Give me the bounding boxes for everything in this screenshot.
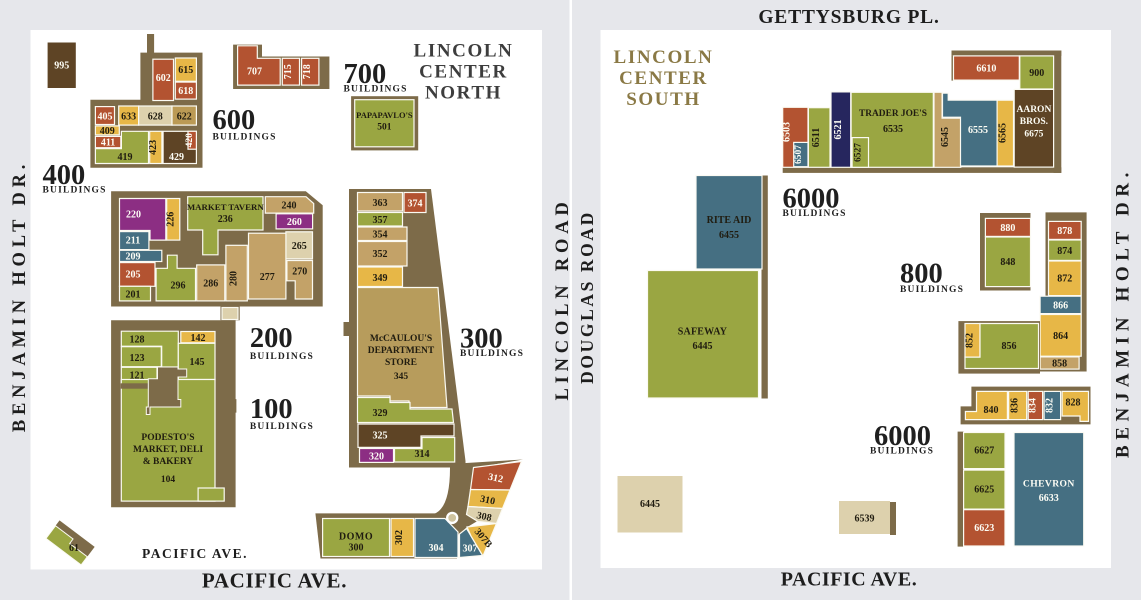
svg-text:DOUGLAS ROAD: DOUGLAS ROAD	[577, 210, 597, 384]
svg-text:6565: 6565	[997, 123, 1008, 143]
svg-text:307: 307	[463, 544, 478, 555]
svg-text:296: 296	[171, 281, 186, 292]
svg-text:325: 325	[373, 431, 388, 442]
svg-text:6455: 6455	[719, 230, 739, 241]
svg-text:6675: 6675	[1024, 130, 1043, 140]
svg-text:NORTH: NORTH	[425, 83, 502, 104]
svg-text:MARKET, DELI: MARKET, DELI	[133, 445, 203, 455]
svg-text:6445: 6445	[693, 341, 713, 352]
svg-text:856: 856	[1002, 341, 1017, 352]
svg-text:6633: 6633	[1039, 493, 1059, 504]
svg-text:633: 633	[121, 111, 136, 122]
svg-text:615: 615	[178, 65, 193, 76]
svg-text:878: 878	[1057, 226, 1072, 237]
svg-text:PACIFIC AVE.: PACIFIC AVE.	[202, 569, 347, 593]
svg-text:6627: 6627	[974, 446, 994, 457]
svg-text:BUILDINGS: BUILDINGS	[213, 133, 277, 143]
svg-text:6539: 6539	[855, 514, 875, 525]
svg-text:618: 618	[178, 86, 193, 97]
svg-text:226: 226	[165, 212, 176, 227]
svg-text:718: 718	[302, 64, 313, 79]
svg-text:354: 354	[373, 230, 388, 241]
svg-text:707: 707	[247, 67, 262, 78]
svg-text:836: 836	[1010, 398, 1021, 413]
svg-text:411: 411	[101, 137, 115, 148]
svg-text:142: 142	[191, 333, 206, 344]
svg-text:DOMO: DOMO	[339, 532, 373, 543]
svg-text:240: 240	[282, 201, 297, 212]
svg-text:100: 100	[250, 394, 293, 425]
svg-text:6503: 6503	[782, 122, 793, 142]
svg-text:352: 352	[373, 249, 388, 260]
svg-text:BENJAMIN HOLT DR.: BENJAMIN HOLT DR.	[1113, 167, 1134, 458]
svg-text:6527: 6527	[853, 143, 863, 162]
svg-text:DEPARTMENT: DEPARTMENT	[368, 346, 435, 356]
svg-text:828: 828	[1066, 398, 1081, 409]
svg-text:872: 872	[1057, 274, 1072, 285]
svg-text:205: 205	[126, 270, 141, 281]
svg-text:832: 832	[1044, 398, 1055, 413]
svg-text:409: 409	[100, 126, 115, 137]
svg-text:349: 349	[373, 273, 388, 284]
svg-text:314: 314	[415, 449, 430, 460]
svg-text:220: 220	[126, 210, 141, 221]
svg-text:LINCOLN: LINCOLN	[414, 41, 514, 62]
svg-text:852: 852	[965, 333, 976, 348]
svg-text:6545: 6545	[940, 127, 951, 147]
svg-text:304: 304	[429, 543, 444, 554]
svg-text:145: 145	[190, 357, 205, 368]
svg-text:BUILDINGS: BUILDINGS	[900, 285, 964, 295]
svg-text:715: 715	[283, 64, 294, 79]
svg-text:501: 501	[377, 123, 392, 133]
svg-text:834: 834	[1027, 398, 1038, 413]
svg-text:6521: 6521	[833, 120, 844, 140]
svg-text:840: 840	[984, 405, 999, 416]
svg-text:357: 357	[373, 215, 388, 226]
svg-text:329: 329	[373, 408, 388, 419]
svg-text:SOUTH: SOUTH	[626, 89, 701, 110]
svg-text:PACIFIC AVE.: PACIFIC AVE.	[781, 569, 917, 591]
svg-text:300: 300	[349, 543, 364, 554]
svg-text:STORE: STORE	[385, 358, 417, 368]
svg-text:6555: 6555	[968, 125, 988, 136]
svg-text:423: 423	[148, 140, 159, 155]
svg-text:866: 866	[1053, 301, 1068, 312]
svg-text:CHEVRON: CHEVRON	[1023, 479, 1075, 490]
svg-text:880: 880	[1000, 223, 1015, 234]
svg-text:6535: 6535	[883, 124, 903, 135]
svg-text:RITE AID: RITE AID	[707, 215, 752, 226]
svg-text:SAFEWAY: SAFEWAY	[678, 327, 728, 338]
svg-text:BUILDINGS: BUILDINGS	[43, 186, 107, 196]
svg-text:& BAKERY: & BAKERY	[143, 457, 194, 467]
svg-text:BUILDINGS: BUILDINGS	[783, 209, 847, 219]
svg-text:363: 363	[373, 198, 388, 209]
svg-text:265: 265	[292, 241, 307, 252]
svg-text:LINCOLN ROAD: LINCOLN ROAD	[553, 197, 573, 400]
svg-text:260: 260	[287, 217, 302, 228]
svg-text:6445: 6445	[640, 499, 660, 510]
svg-text:6507: 6507	[794, 145, 804, 164]
svg-text:209: 209	[126, 251, 141, 262]
svg-text:600: 600	[213, 105, 256, 136]
svg-text:211: 211	[126, 236, 140, 247]
svg-text:BUILDINGS: BUILDINGS	[870, 447, 934, 457]
svg-text:286: 286	[203, 279, 218, 290]
svg-text:MARKET TAVERN: MARKET TAVERN	[187, 202, 264, 212]
svg-text:TRADER JOE'S: TRADER JOE'S	[859, 109, 927, 119]
svg-text:PACIFIC AVE.: PACIFIC AVE.	[142, 546, 248, 561]
svg-text:302: 302	[394, 530, 405, 545]
svg-text:6625: 6625	[974, 485, 994, 496]
svg-text:280: 280	[229, 271, 240, 286]
svg-text:PAPAPAVLO'S: PAPAPAVLO'S	[356, 110, 413, 120]
svg-text:201: 201	[126, 290, 141, 301]
svg-text:104: 104	[161, 475, 176, 485]
svg-text:995: 995	[54, 61, 69, 72]
svg-text:CENTER: CENTER	[619, 68, 708, 89]
svg-text:270: 270	[292, 267, 307, 278]
svg-text:858: 858	[1052, 359, 1067, 370]
svg-text:6511: 6511	[811, 128, 822, 147]
svg-text:LINCOLN: LINCOLN	[614, 47, 714, 68]
svg-text:AARON: AARON	[1016, 105, 1051, 115]
svg-text:6610: 6610	[976, 64, 996, 75]
svg-text:602: 602	[156, 73, 171, 84]
svg-text:BUILDINGS: BUILDINGS	[460, 349, 524, 359]
svg-text:BUILDINGS: BUILDINGS	[250, 422, 314, 432]
svg-text:874: 874	[1057, 246, 1072, 257]
svg-text:345: 345	[394, 372, 409, 382]
svg-text:848: 848	[1000, 257, 1015, 268]
svg-text:6623: 6623	[974, 523, 994, 534]
svg-text:CENTER: CENTER	[419, 62, 508, 83]
svg-text:128: 128	[130, 335, 145, 346]
svg-text:900: 900	[1029, 68, 1044, 79]
svg-text:622: 622	[177, 111, 192, 122]
svg-text:BUILDINGS: BUILDINGS	[344, 85, 408, 95]
svg-text:864: 864	[1053, 331, 1068, 342]
svg-text:419: 419	[118, 152, 133, 163]
svg-text:123: 123	[130, 353, 145, 364]
svg-text:374: 374	[408, 199, 423, 210]
svg-text:BUILDINGS: BUILDINGS	[250, 352, 314, 362]
svg-text:200: 200	[250, 323, 293, 354]
svg-text:BENJAMIN HOLT DR.: BENJAMIN HOLT DR.	[10, 160, 30, 432]
svg-text:BROS.: BROS.	[1020, 117, 1048, 127]
svg-text:GETTYSBURG PL.: GETTYSBURG PL.	[758, 7, 939, 28]
svg-text:PODESTO'S: PODESTO'S	[141, 433, 194, 443]
svg-text:277: 277	[260, 272, 275, 283]
svg-text:320: 320	[369, 452, 384, 463]
svg-text:405: 405	[98, 111, 113, 122]
svg-text:429: 429	[169, 152, 184, 163]
svg-text:61: 61	[69, 543, 79, 554]
svg-text:236: 236	[218, 214, 233, 225]
svg-text:McCAULOU'S: McCAULOU'S	[370, 334, 432, 344]
svg-text:420: 420	[185, 133, 195, 148]
svg-text:628: 628	[148, 111, 163, 122]
